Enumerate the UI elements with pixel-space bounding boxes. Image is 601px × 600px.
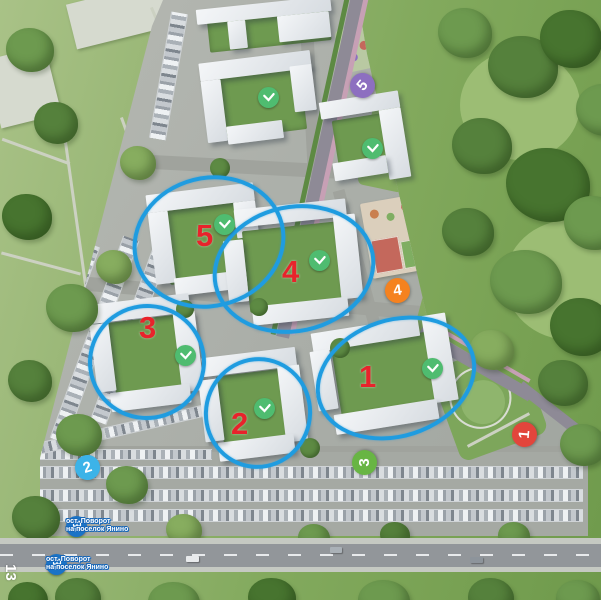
playground-equipment (386, 212, 395, 221)
checkmark-icon (364, 140, 381, 157)
tree (358, 580, 410, 600)
tree (442, 208, 494, 256)
bus-stop-label-line2: на поселок Янино (66, 526, 128, 534)
checkmark-icon (424, 360, 441, 377)
tree (550, 298, 601, 356)
bus-stop-label-line1: ост. Поворот (66, 518, 128, 526)
tree (248, 578, 296, 600)
completed-badge[interactable] (214, 214, 235, 235)
bus-stop-label: ост. Поворот на поселок Янино (66, 518, 128, 534)
tree (470, 330, 514, 370)
route-marker-label: 1 (517, 430, 533, 440)
building (227, 20, 248, 50)
completed-badge[interactable] (254, 398, 275, 419)
tree (6, 28, 54, 72)
tree (468, 578, 514, 600)
site-plan-map: 5 4 3 2 1 5 4 1 2 3 ост. Поворот на посе… (0, 0, 601, 600)
route-marker-label: 2 (81, 459, 94, 476)
tree (12, 496, 60, 540)
tree (556, 580, 600, 600)
tree (106, 466, 148, 504)
completed-badge[interactable] (258, 87, 279, 108)
cluster-number-2[interactable]: 2 (231, 408, 248, 439)
tree (540, 10, 601, 68)
route-marker-3[interactable]: 3 (352, 450, 377, 475)
car (470, 557, 483, 563)
tree (8, 582, 48, 600)
bus-stop-label-line2: на поселок Янино (46, 564, 108, 572)
tree (452, 118, 512, 174)
route-marker-label: 5 (354, 77, 371, 93)
tree (120, 146, 156, 180)
tree (34, 102, 78, 144)
playground-equipment (400, 201, 410, 211)
cluster-number-1[interactable]: 1 (359, 361, 376, 392)
checkmark-icon (311, 252, 328, 269)
playground-equipment (369, 209, 379, 219)
cluster-number-4[interactable]: 4 (282, 256, 299, 287)
building (289, 64, 316, 112)
car (330, 547, 342, 553)
tree (2, 194, 52, 240)
checkmark-icon (216, 216, 233, 233)
parking-row (149, 11, 188, 140)
car (186, 556, 199, 562)
completed-badge[interactable] (422, 358, 443, 379)
cluster-number-3[interactable]: 3 (139, 312, 156, 343)
building (277, 11, 331, 42)
tree (56, 414, 102, 456)
tree (55, 578, 101, 600)
completed-badge[interactable] (309, 250, 330, 271)
playground-equipment (359, 40, 370, 51)
completed-badge[interactable] (175, 345, 196, 366)
page-number: 13 (2, 564, 19, 581)
tree (8, 360, 52, 402)
tree (576, 84, 601, 136)
tree (538, 360, 588, 406)
sport-court (370, 236, 403, 274)
checkmark-icon (256, 400, 273, 417)
checkmark-icon (260, 89, 277, 106)
bus-stop-label: ост. Поворот на поселок Янино (46, 556, 108, 572)
completed-badge[interactable] (362, 138, 383, 159)
tree (438, 8, 492, 58)
bus-stop-label-line1: ост. Поворот (46, 556, 108, 564)
cluster-number-5[interactable]: 5 (196, 220, 213, 251)
route-marker-label: 3 (357, 458, 372, 466)
park-path (1, 251, 81, 275)
route-marker-label: 4 (392, 282, 402, 298)
checkmark-icon (177, 347, 194, 364)
sport-court (400, 237, 428, 269)
tree (490, 250, 562, 314)
tree (148, 582, 200, 600)
tree (96, 250, 132, 284)
tree (46, 284, 98, 332)
parking-row (73, 59, 137, 229)
